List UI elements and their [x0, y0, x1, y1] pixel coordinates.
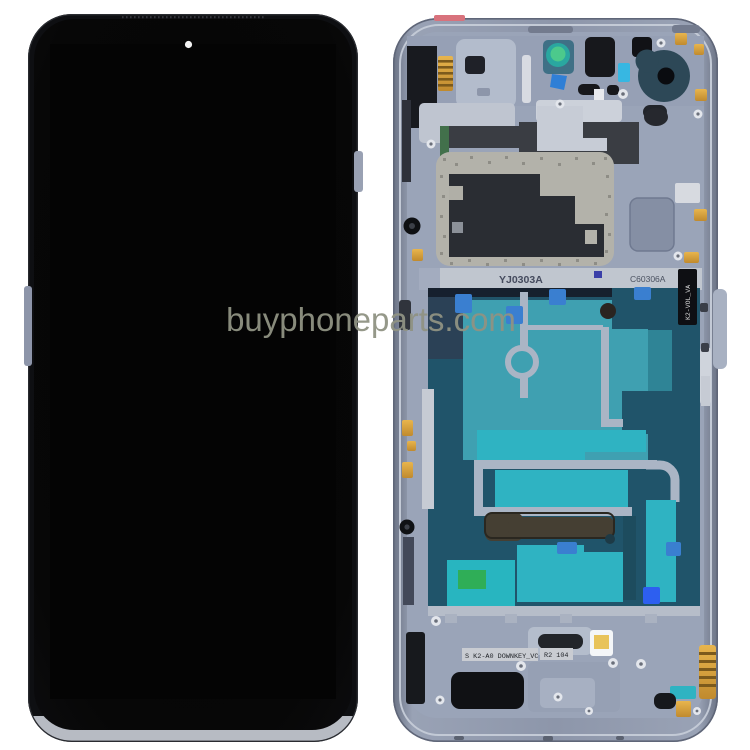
- svg-text:R2 104: R2 104: [544, 652, 568, 660]
- svg-text:S K2-A0 DOWNKEY_VC: S K2-A0 DOWNKEY_VC: [465, 653, 538, 661]
- svg-text:YJ0303A: YJ0303A: [499, 274, 543, 286]
- svg-text:buyphoneparts.com: buyphoneparts.com: [226, 301, 516, 338]
- svg-text:C60306A: C60306A: [630, 274, 666, 284]
- svg-text:K2-VOL_VA: K2-VOL_VA: [685, 285, 692, 320]
